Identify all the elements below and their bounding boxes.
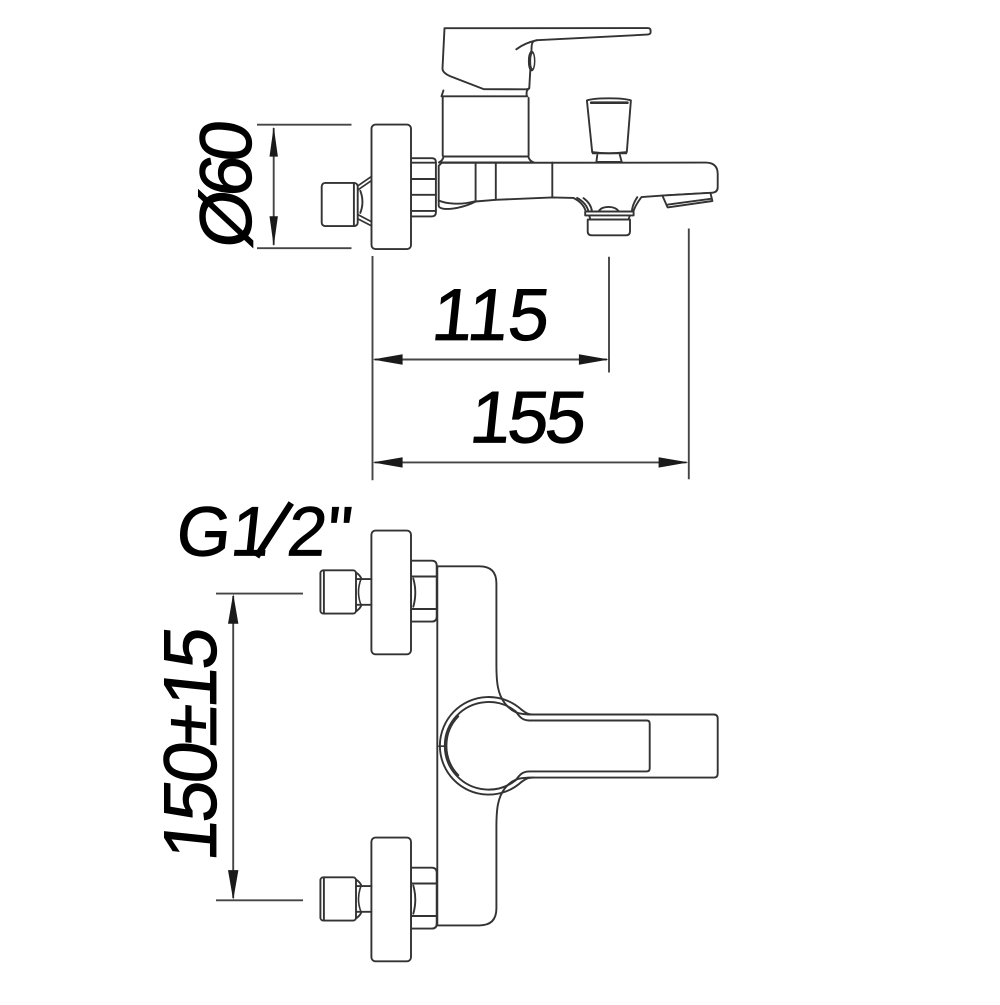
svg-text:2": 2" xyxy=(284,492,356,571)
svg-text:Ø60: Ø60 xyxy=(184,116,267,252)
svg-text:155: 155 xyxy=(466,376,591,459)
svg-text:115: 115 xyxy=(428,273,554,356)
svg-text:150±15: 150±15 xyxy=(148,622,232,864)
svg-text:G1: G1 xyxy=(173,492,275,571)
